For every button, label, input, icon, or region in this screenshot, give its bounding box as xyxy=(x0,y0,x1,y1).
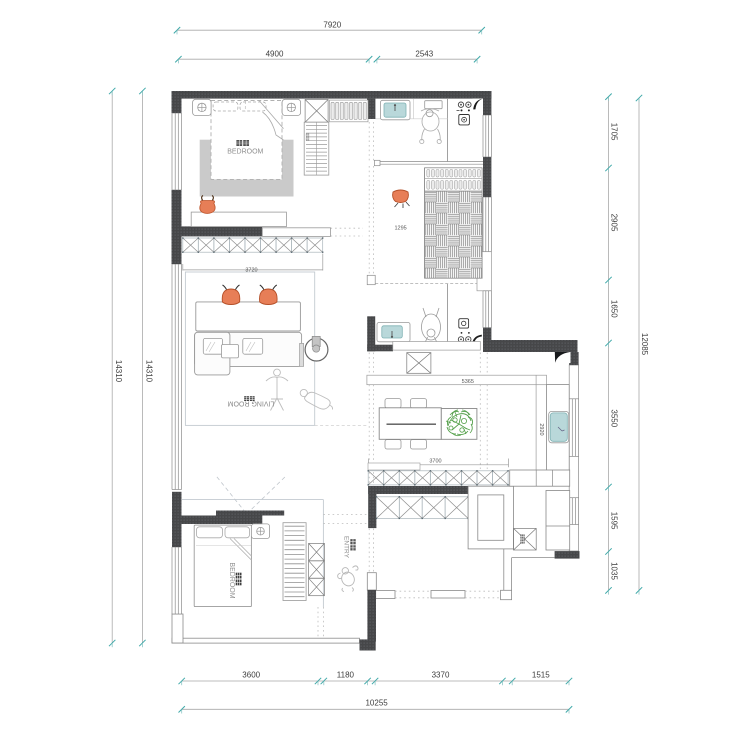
svg-text:7920: 7920 xyxy=(323,21,341,30)
svg-text:3550: 3550 xyxy=(610,409,619,427)
svg-text:2543: 2543 xyxy=(415,50,433,59)
svg-text:3370: 3370 xyxy=(432,670,450,679)
svg-text:1295: 1295 xyxy=(394,226,406,232)
svg-text:14310: 14310 xyxy=(144,360,153,383)
svg-text:14310: 14310 xyxy=(114,360,123,383)
svg-text:BEDROOM: BEDROOM xyxy=(227,149,263,156)
svg-text:LIVING ROOM: LIVING ROOM xyxy=(228,400,275,407)
svg-text:BEDROOM: BEDROOM xyxy=(228,562,235,598)
svg-text:4900: 4900 xyxy=(266,50,284,59)
svg-text:1035: 1035 xyxy=(610,562,619,580)
svg-text:2905: 2905 xyxy=(610,214,619,232)
svg-text:1595: 1595 xyxy=(610,512,619,530)
svg-text:5365: 5365 xyxy=(462,379,474,385)
svg-text:2920: 2920 xyxy=(538,423,544,435)
svg-text:1705: 1705 xyxy=(610,123,619,141)
svg-text:3700: 3700 xyxy=(429,459,441,465)
svg-text:3720: 3720 xyxy=(245,267,257,273)
svg-text:3600: 3600 xyxy=(242,670,260,679)
svg-text:12085: 12085 xyxy=(640,333,649,356)
svg-text:ENTRY: ENTRY xyxy=(343,536,350,559)
svg-text:1180: 1180 xyxy=(337,670,355,679)
svg-text:1650: 1650 xyxy=(610,300,619,318)
svg-text:1515: 1515 xyxy=(532,670,550,679)
svg-text:10255: 10255 xyxy=(365,699,388,708)
